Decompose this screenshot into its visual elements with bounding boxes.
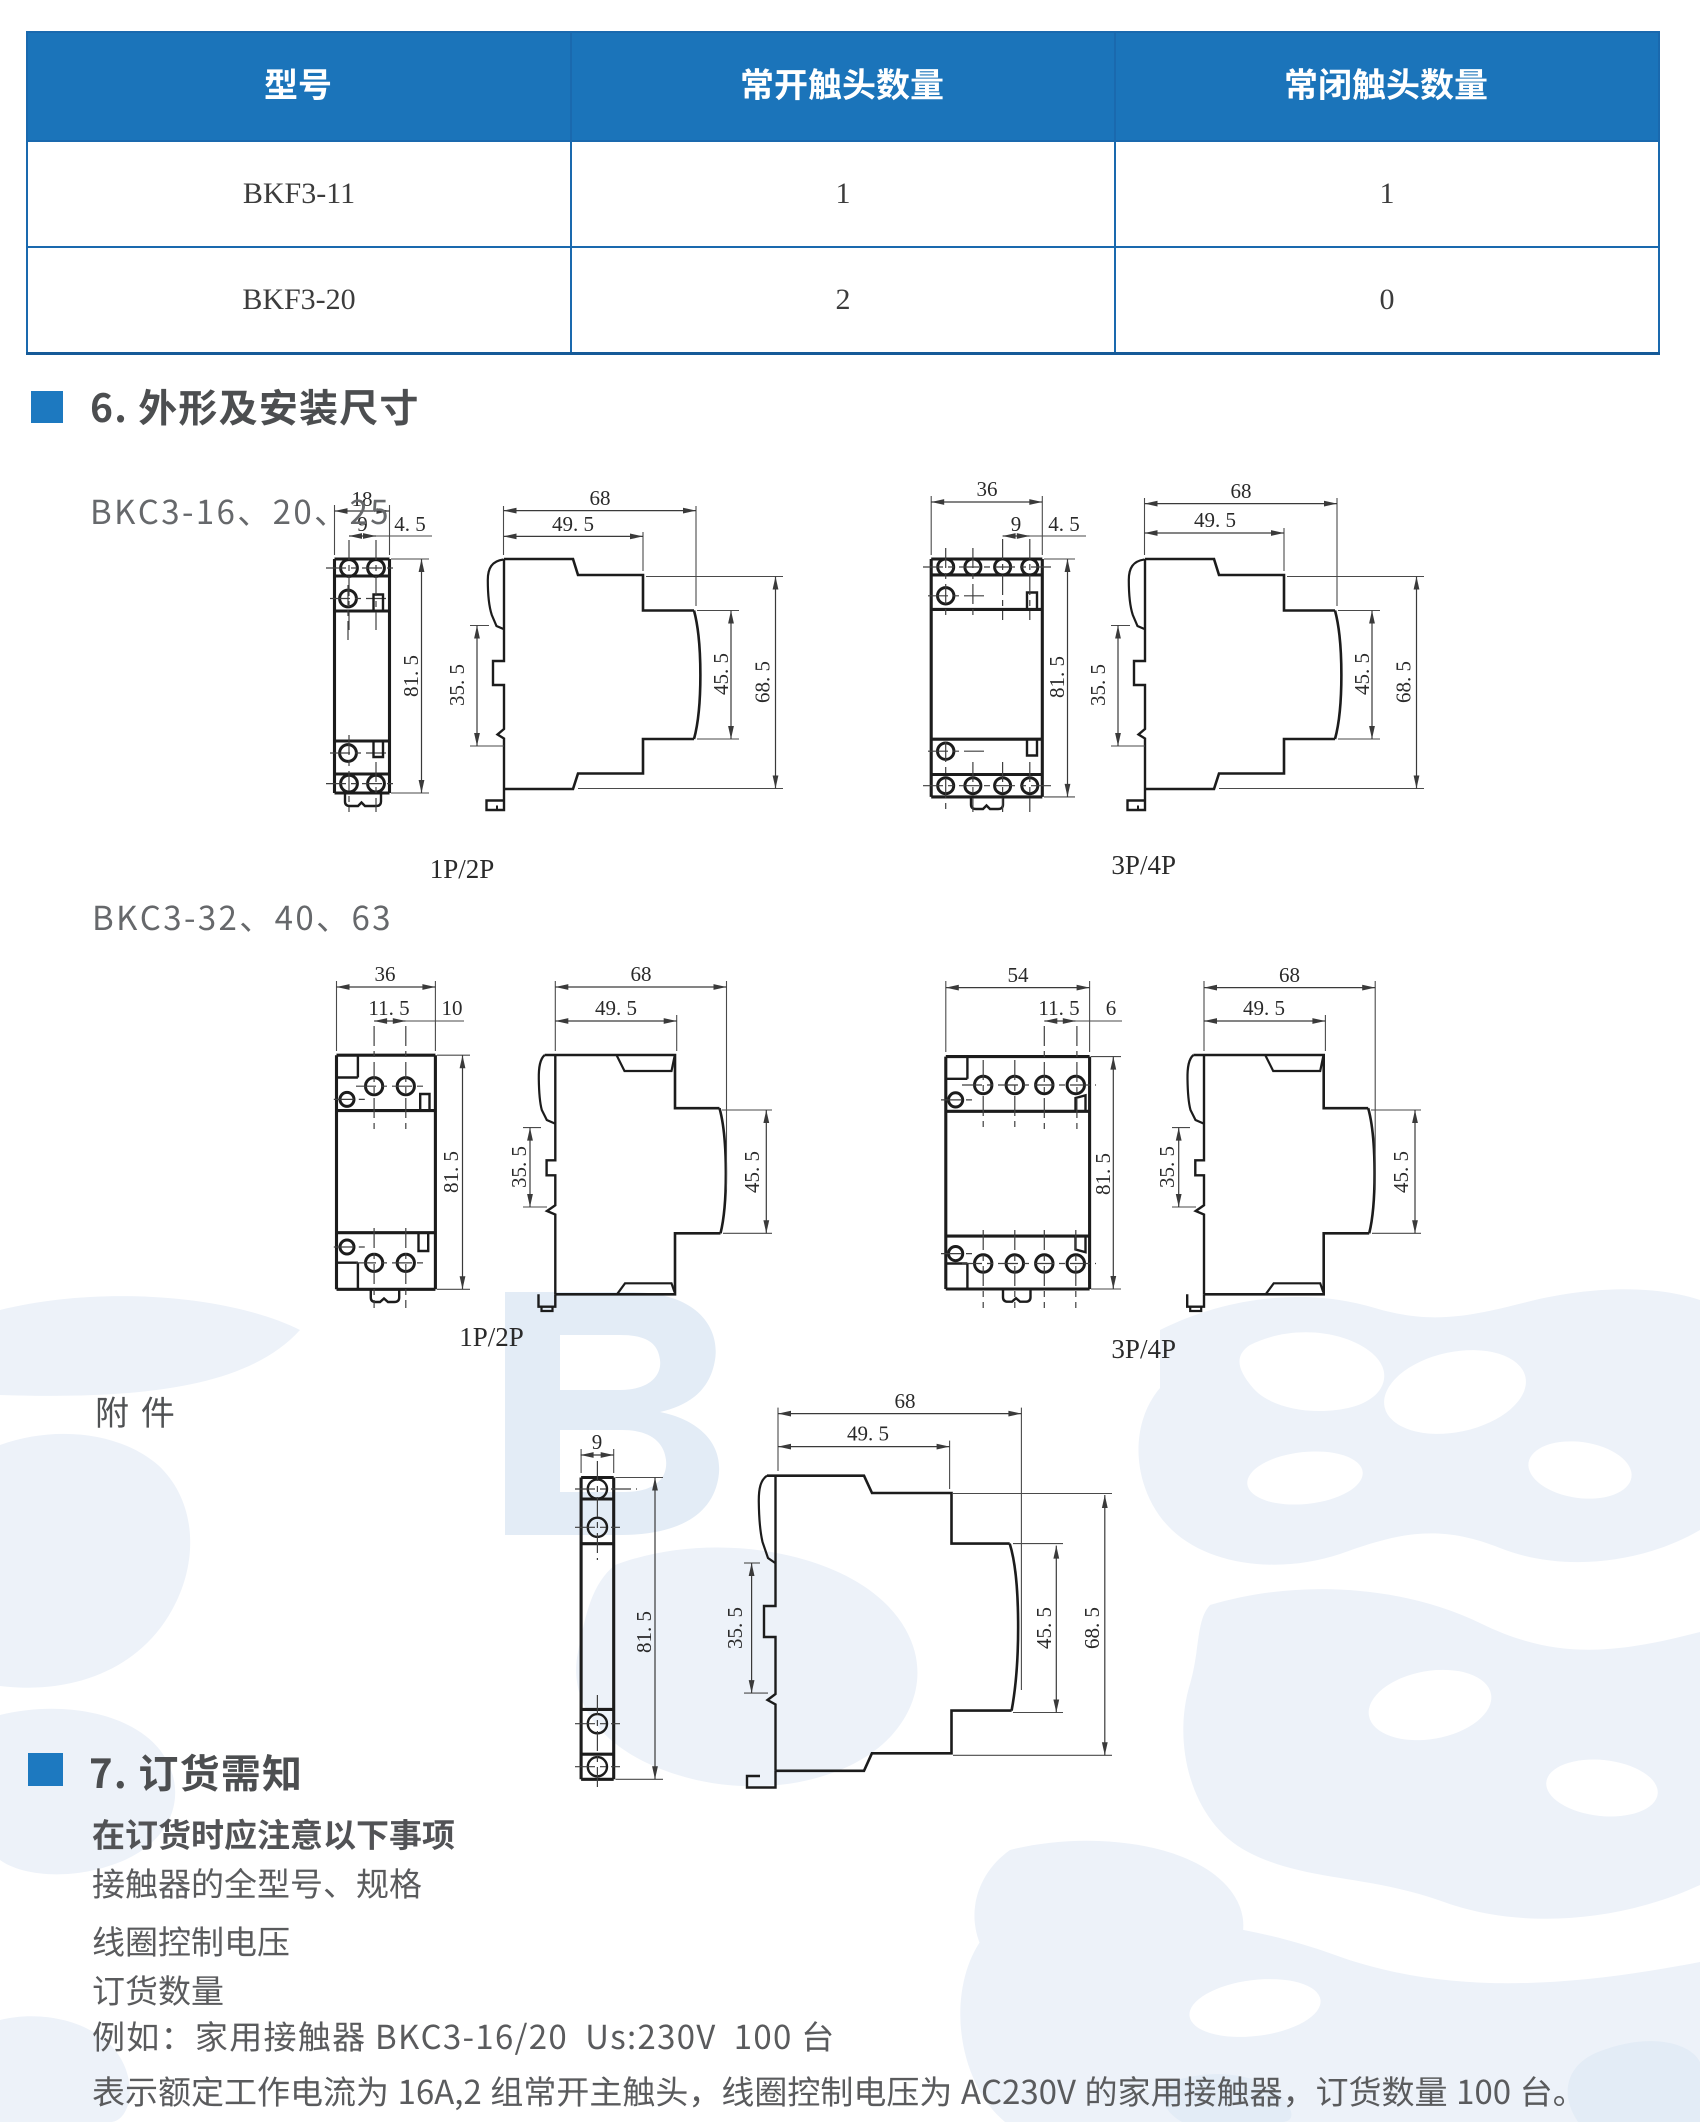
svg-text:4. 5: 4. 5 <box>394 512 426 536</box>
svg-text:9: 9 <box>1011 512 1022 536</box>
svg-text:68. 5: 68. 5 <box>1080 1607 1104 1649</box>
svg-text:68: 68 <box>631 962 652 986</box>
svg-text:49. 5: 49. 5 <box>595 996 637 1020</box>
svg-text:35. 5: 35. 5 <box>723 1607 747 1649</box>
svg-text:81. 5: 81. 5 <box>439 1151 463 1193</box>
svg-text:81. 5: 81. 5 <box>1091 1153 1115 1195</box>
svg-text:45. 5: 45. 5 <box>709 653 733 695</box>
svg-text:45. 5: 45. 5 <box>1389 1151 1413 1193</box>
svg-text:45. 5: 45. 5 <box>1350 653 1374 695</box>
svg-text:1P/2P: 1P/2P <box>459 1322 524 1352</box>
svg-text:49. 5: 49. 5 <box>1243 996 1285 1020</box>
svg-text:11. 5: 11. 5 <box>1038 996 1079 1020</box>
svg-text:49. 5: 49. 5 <box>552 512 594 536</box>
svg-text:45. 5: 45. 5 <box>740 1151 764 1193</box>
svg-text:1P/2P: 1P/2P <box>430 854 495 884</box>
svg-text:68: 68 <box>1231 479 1252 503</box>
svg-text:10: 10 <box>442 996 463 1020</box>
svg-text:45. 5: 45. 5 <box>1032 1607 1056 1649</box>
svg-text:54: 54 <box>1008 963 1030 987</box>
svg-text:49. 5: 49. 5 <box>847 1422 889 1446</box>
svg-text:49. 5: 49. 5 <box>1194 508 1236 532</box>
svg-text:81. 5: 81. 5 <box>399 655 423 697</box>
svg-text:36: 36 <box>375 962 396 986</box>
svg-text:3P/4P: 3P/4P <box>1111 850 1176 880</box>
svg-text:36: 36 <box>977 477 998 501</box>
svg-text:68. 5: 68. 5 <box>751 661 775 703</box>
svg-text:81. 5: 81. 5 <box>1045 656 1069 698</box>
svg-text:11. 5: 11. 5 <box>368 996 409 1020</box>
svg-text:68: 68 <box>590 486 611 510</box>
svg-text:35. 5: 35. 5 <box>445 664 469 706</box>
svg-text:68. 5: 68. 5 <box>1392 661 1416 703</box>
svg-text:35. 5: 35. 5 <box>507 1146 531 1188</box>
svg-text:68: 68 <box>895 1389 916 1413</box>
svg-text:4. 5: 4. 5 <box>1048 512 1080 536</box>
svg-text:9: 9 <box>592 1430 603 1454</box>
svg-text:81. 5: 81. 5 <box>632 1611 656 1653</box>
svg-text:6: 6 <box>1106 996 1117 1020</box>
svg-text:68: 68 <box>1279 963 1300 987</box>
svg-text:35. 5: 35. 5 <box>1155 1146 1179 1188</box>
svg-text:3P/4P: 3P/4P <box>1111 1334 1176 1364</box>
svg-text:35. 5: 35. 5 <box>1086 664 1110 706</box>
